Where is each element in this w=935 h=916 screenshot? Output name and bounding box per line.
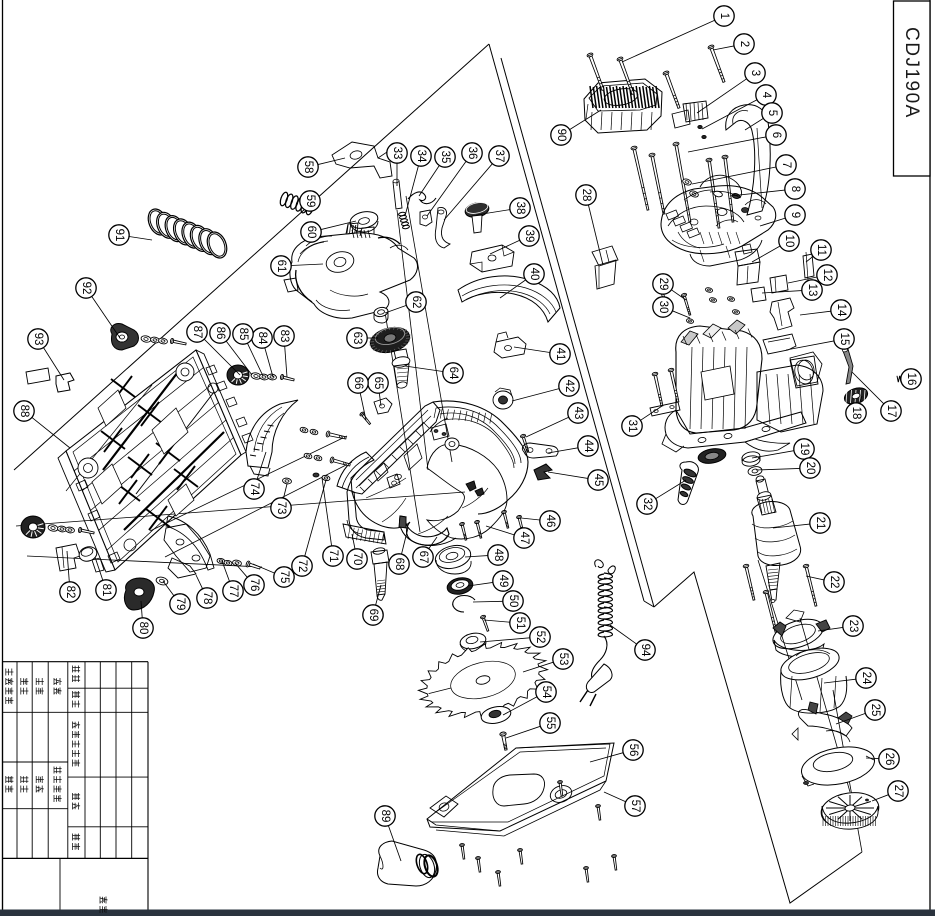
svg-text:CDJ190A: CDJ190A — [901, 27, 922, 119]
svg-text:41: 41 — [554, 348, 566, 361]
svg-text:1: 1 — [718, 13, 730, 19]
svg-text:73: 73 — [275, 502, 287, 515]
svg-text:30: 30 — [657, 301, 669, 314]
svg-text:40: 40 — [528, 268, 540, 281]
svg-text:59: 59 — [304, 195, 316, 208]
svg-text:33: 33 — [391, 147, 403, 160]
svg-text:3: 3 — [749, 70, 761, 76]
svg-text:24: 24 — [860, 672, 872, 685]
svg-text:60: 60 — [305, 226, 317, 239]
svg-text:93: 93 — [32, 333, 44, 346]
svg-text:46: 46 — [544, 515, 556, 528]
svg-text:27: 27 — [892, 785, 904, 798]
svg-text:64: 64 — [447, 367, 459, 380]
svg-text:68: 68 — [393, 558, 405, 571]
svg-text:45: 45 — [592, 474, 604, 487]
svg-text:20: 20 — [804, 462, 816, 475]
svg-text:82: 82 — [64, 586, 76, 599]
svg-text:91: 91 — [113, 229, 125, 242]
svg-text:80: 80 — [137, 622, 149, 635]
svg-text:29: 29 — [657, 278, 669, 291]
svg-text:51: 51 — [514, 617, 526, 630]
svg-text:79: 79 — [174, 598, 186, 611]
svg-text:13: 13 — [806, 284, 818, 297]
svg-text:85: 85 — [237, 328, 249, 341]
svg-text:12: 12 — [821, 269, 833, 282]
svg-text:17: 17 — [885, 405, 897, 418]
svg-text:67: 67 — [417, 551, 429, 564]
svg-text:10: 10 — [783, 235, 795, 248]
svg-text:26: 26 — [883, 753, 895, 766]
svg-text:55: 55 — [544, 717, 556, 730]
svg-text:94: 94 — [639, 644, 651, 657]
svg-text:49: 49 — [497, 575, 509, 588]
svg-text:66: 66 — [352, 377, 364, 390]
svg-text:86: 86 — [214, 327, 226, 340]
svg-text:50: 50 — [507, 595, 519, 608]
svg-text:43: 43 — [572, 407, 584, 420]
svg-text:77: 77 — [227, 585, 239, 598]
svg-text:15: 15 — [838, 333, 850, 346]
svg-text:14: 14 — [835, 304, 847, 317]
svg-text:35: 35 — [439, 151, 451, 164]
svg-text:37: 37 — [493, 150, 505, 163]
svg-text:92: 92 — [80, 282, 92, 295]
svg-text:57: 57 — [629, 800, 641, 813]
svg-text:39: 39 — [523, 230, 535, 243]
svg-text:62: 62 — [410, 296, 422, 309]
svg-text:88: 88 — [18, 405, 30, 418]
svg-text:6: 6 — [770, 132, 782, 138]
svg-text:78: 78 — [201, 592, 213, 605]
svg-text:42: 42 — [563, 380, 575, 393]
svg-text:61: 61 — [275, 260, 287, 273]
svg-text:74: 74 — [248, 483, 260, 496]
svg-text:58: 58 — [302, 161, 314, 174]
svg-text:56: 56 — [627, 744, 639, 757]
svg-text:7: 7 — [780, 162, 792, 168]
svg-text:75: 75 — [278, 571, 290, 584]
svg-text:54: 54 — [540, 686, 552, 699]
svg-text:47: 47 — [518, 532, 530, 545]
svg-text:22: 22 — [828, 576, 840, 589]
svg-text:89: 89 — [379, 810, 391, 823]
svg-text:84: 84 — [256, 332, 268, 345]
svg-text:23: 23 — [847, 620, 859, 633]
svg-text:48: 48 — [492, 549, 504, 562]
svg-text:71: 71 — [327, 550, 339, 563]
svg-text:28: 28 — [580, 189, 592, 202]
svg-text:18: 18 — [850, 407, 862, 420]
svg-text:72: 72 — [296, 560, 308, 573]
svg-text:87: 87 — [191, 326, 203, 339]
svg-text:16: 16 — [905, 373, 917, 386]
svg-text:65: 65 — [372, 377, 384, 390]
svg-text:38: 38 — [514, 202, 526, 215]
svg-text:44: 44 — [582, 440, 594, 453]
svg-text:19: 19 — [798, 443, 810, 456]
svg-text:21: 21 — [814, 517, 826, 530]
svg-text:53: 53 — [557, 653, 569, 666]
svg-text:81: 81 — [100, 584, 112, 597]
svg-text:76: 76 — [248, 579, 260, 592]
svg-text:8: 8 — [789, 186, 801, 192]
svg-text:9: 9 — [789, 212, 801, 218]
svg-text:36: 36 — [466, 147, 478, 160]
svg-text:83: 83 — [278, 330, 290, 343]
svg-text:90: 90 — [555, 129, 567, 142]
svg-text:11: 11 — [815, 244, 827, 256]
svg-text:2: 2 — [738, 41, 750, 47]
svg-text:5: 5 — [766, 110, 778, 116]
svg-text:52: 52 — [534, 631, 546, 644]
svg-text:70: 70 — [351, 553, 363, 566]
svg-text:31: 31 — [626, 420, 638, 433]
svg-text:63: 63 — [351, 332, 363, 345]
svg-text:4: 4 — [760, 92, 772, 99]
svg-text:32: 32 — [641, 498, 653, 511]
svg-text:25: 25 — [869, 704, 881, 717]
svg-text:69: 69 — [367, 609, 379, 622]
svg-text:34: 34 — [415, 150, 427, 163]
